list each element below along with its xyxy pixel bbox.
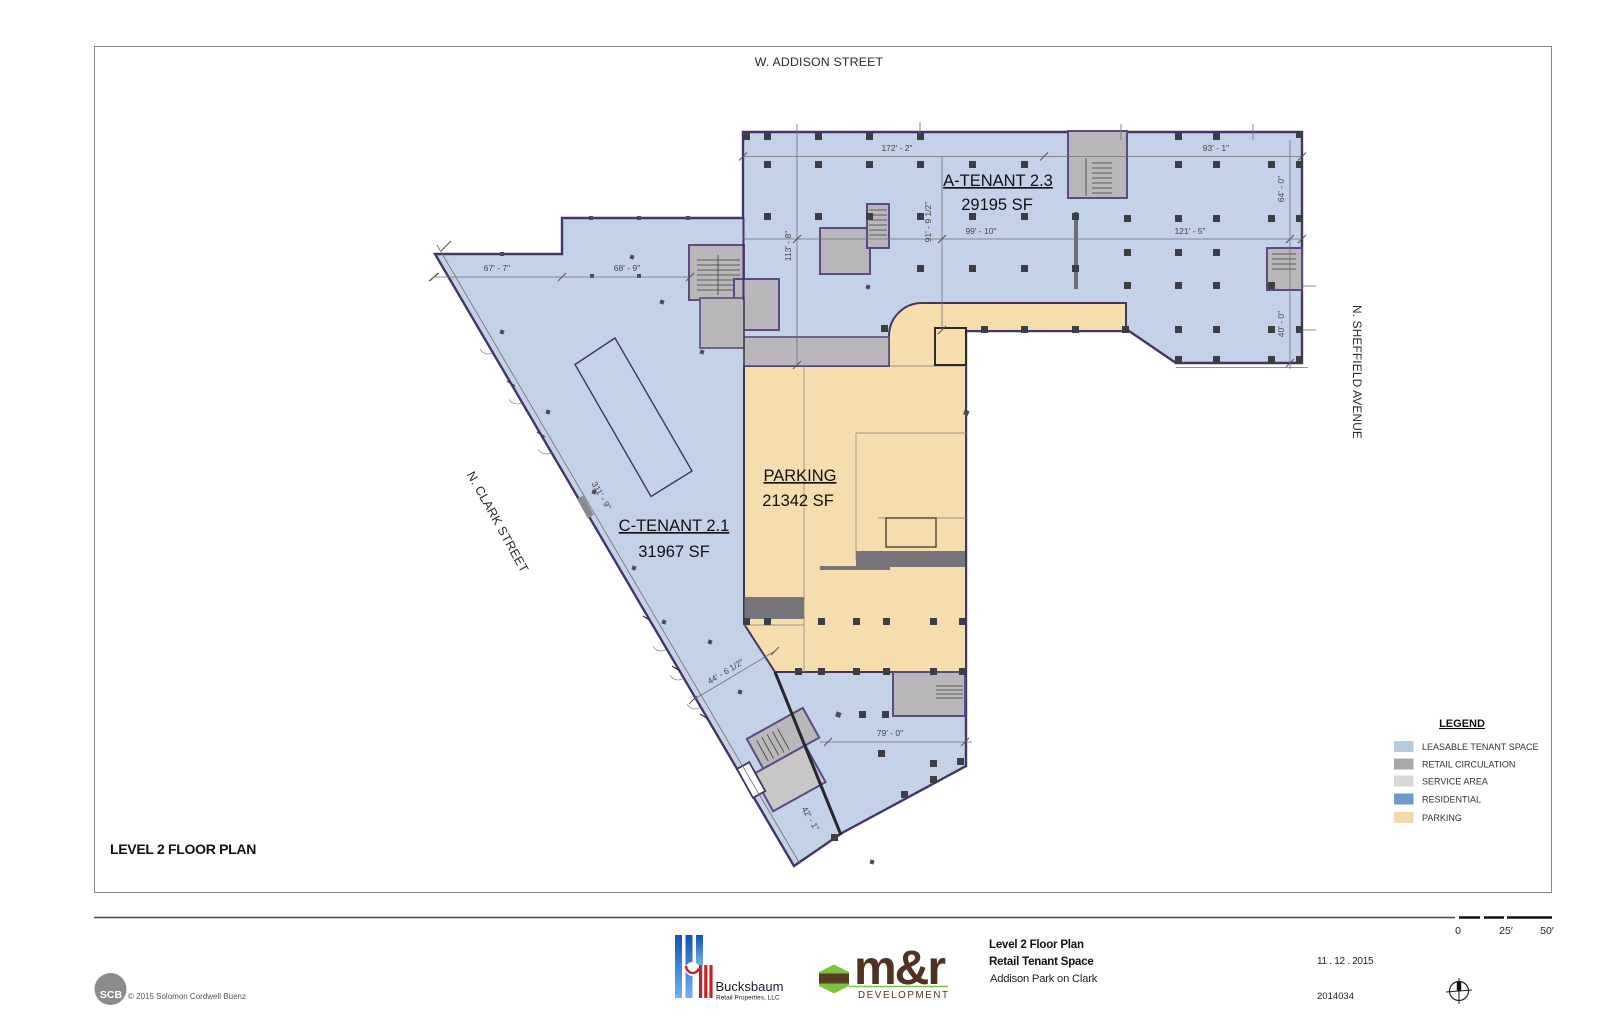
svg-text:C-TENANT 2.1: C-TENANT 2.1 <box>619 517 730 535</box>
svg-text:99' - 10": 99' - 10" <box>965 226 996 236</box>
svg-text:11 . 12 . 2015: 11 . 12 . 2015 <box>1317 956 1374 967</box>
svg-text:29195 SF: 29195 SF <box>961 196 1033 214</box>
svg-text:Retail Tenant Space: Retail Tenant Space <box>989 956 1094 968</box>
svg-text:2014034: 2014034 <box>1317 991 1354 1002</box>
svg-text:113' - 8": 113' - 8" <box>783 231 793 261</box>
svg-text:Level 2 Floor Plan: Level 2 Floor Plan <box>989 939 1084 951</box>
svg-text:LEVEL 2 FLOOR PLAN: LEVEL 2 FLOOR PLAN <box>110 841 256 857</box>
svg-text:31967 SF: 31967 SF <box>638 543 710 561</box>
svg-text:0: 0 <box>1455 925 1461 937</box>
svg-text:PARKING: PARKING <box>1422 813 1462 823</box>
svg-text:93' - 1": 93' - 1" <box>1203 143 1229 153</box>
svg-text:SERVICE AREA: SERVICE AREA <box>1422 777 1488 787</box>
svg-text:50′: 50′ <box>1540 925 1554 937</box>
svg-text:RETAIL CIRCULATION: RETAIL CIRCULATION <box>1422 760 1515 770</box>
svg-text:LEASABLE TENANT SPACE: LEASABLE TENANT SPACE <box>1422 742 1539 752</box>
svg-text:40' - 0": 40' - 0" <box>1276 311 1286 337</box>
svg-text:21342 SF: 21342 SF <box>762 492 834 510</box>
svg-text:Retail Properties, LLC: Retail Properties, LLC <box>716 995 780 1002</box>
svg-text:A-TENANT 2.3: A-TENANT 2.3 <box>943 172 1053 190</box>
svg-text:67' - 7": 67' - 7" <box>484 263 510 273</box>
svg-text:N. SHEFFIELD AVENUE: N. SHEFFIELD AVENUE <box>1350 305 1364 439</box>
svg-text:RESIDENTIAL: RESIDENTIAL <box>1422 795 1481 805</box>
svg-text:121' - 5": 121' - 5" <box>1174 226 1205 236</box>
svg-text:91' - 9 1/2": 91' - 9 1/2" <box>923 202 933 243</box>
svg-text:LEGEND: LEGEND <box>1439 718 1485 730</box>
svg-text:W. ADDISON STREET: W. ADDISON STREET <box>755 55 884 69</box>
svg-text:SCB: SCB <box>100 989 123 1001</box>
svg-text:PARKING: PARKING <box>763 467 836 485</box>
svg-text:25′: 25′ <box>1499 925 1513 937</box>
svg-text:Addison Park on Clark: Addison Park on Clark <box>990 973 1098 985</box>
svg-text:© 2015 Solomon Cordwell Buenz: © 2015 Solomon Cordwell Buenz <box>128 992 246 1001</box>
svg-text:172' - 2": 172' - 2" <box>881 143 912 153</box>
svg-text:68' - 9": 68' - 9" <box>614 263 640 273</box>
svg-text:Bucksbaum: Bucksbaum <box>716 979 784 994</box>
svg-text:DEVELOPMENT: DEVELOPMENT <box>858 990 950 1001</box>
svg-text:79' - 0": 79' - 0" <box>877 728 903 738</box>
svg-text:64' - 0": 64' - 0" <box>1276 176 1286 202</box>
